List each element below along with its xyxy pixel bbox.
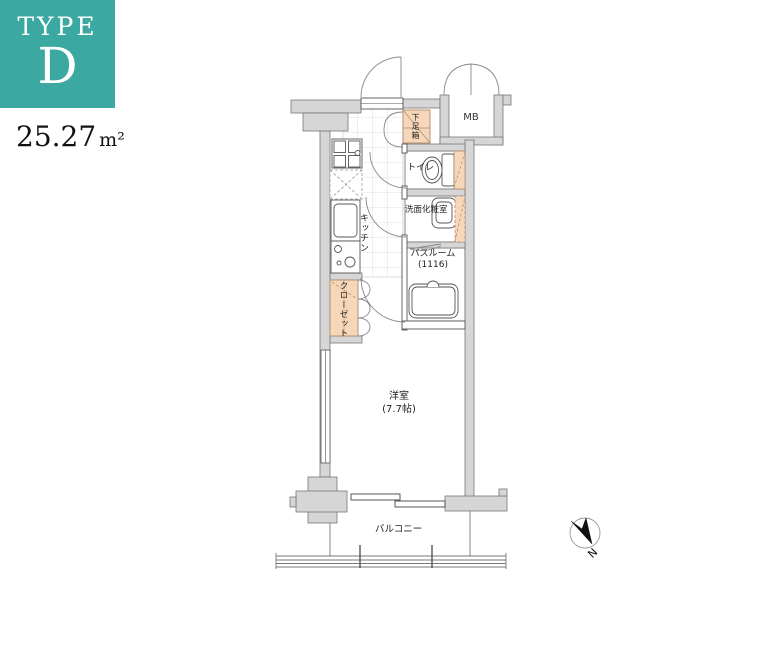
pipe-space-toilet <box>454 151 465 189</box>
label-bathroom: バスルーム (1116) <box>402 249 464 271</box>
label-balcony: バルコニー <box>375 521 422 535</box>
kitchen-stove-icon <box>331 241 360 273</box>
label-washroom: 洗面化粧室 <box>405 203 448 215</box>
label-bathroom-size: (1116) <box>402 260 464 271</box>
floor-plan-drawing <box>0 0 770 650</box>
label-shoe-box: 下足箱 <box>410 113 421 140</box>
label-main-room-size: (7.7帖) <box>366 403 432 416</box>
floor-plan-page: TYPE D 25.27m² <box>0 0 770 650</box>
balcony-window-icon <box>351 494 445 507</box>
compass-icon <box>570 518 600 548</box>
label-closet: クローゼット <box>337 281 349 338</box>
label-main-room: 洋室 (7.7帖) <box>366 390 432 416</box>
closet-doors-icon <box>358 280 370 336</box>
room-door-icon <box>361 278 405 322</box>
label-main-room-name: 洋室 <box>366 390 432 403</box>
refrigerator-space-icon <box>330 170 362 199</box>
label-kitchen: キッチン <box>357 213 370 253</box>
kitchen-sink-icon <box>331 200 360 241</box>
bathtub-icon <box>409 281 458 318</box>
entrance-door-icon <box>361 57 401 97</box>
label-bathroom-name: バスルーム <box>402 249 464 260</box>
pipe-space-washroom <box>455 196 465 242</box>
left-window-icon <box>321 350 330 463</box>
mb-doors-icon <box>444 64 499 95</box>
label-toilet: トイレ <box>407 160 434 173</box>
label-meter-box: MB <box>448 112 494 123</box>
washer-pan-icon <box>332 139 362 168</box>
